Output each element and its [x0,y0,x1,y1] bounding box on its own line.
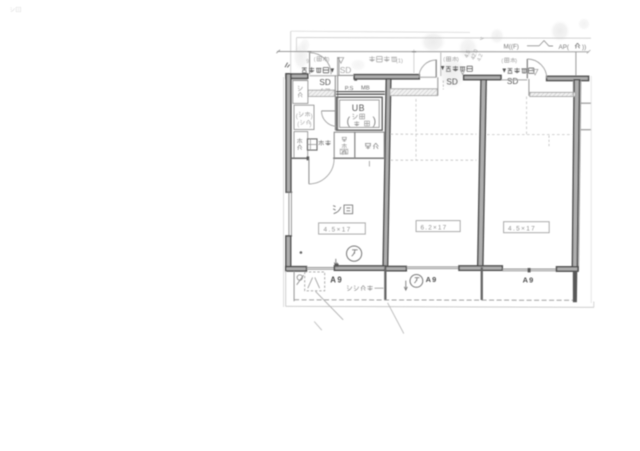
svg-text:AP(: AP( [559,44,570,51]
svg-text:UB: UB [352,103,365,113]
svg-text:(1): (1) [396,58,403,64]
svg-text:): ) [515,58,517,64]
svg-text:SD: SD [340,65,352,75]
svg-text:SD: SD [319,78,330,87]
svg-text:(: ( [501,58,503,64]
svg-text:9: 9 [306,59,309,65]
svg-text:4.5×17: 4.5×17 [508,225,536,232]
svg-text:SD: SD [446,78,457,87]
svg-text:(: ( [443,57,445,63]
svg-text:A9: A9 [523,276,535,285]
svg-text:SD: SD [507,77,518,86]
svg-text:M((F): M((F) [504,44,519,51]
svg-text:P.S: P.S [345,86,354,92]
svg-text:): ) [311,113,313,120]
svg-text:A9: A9 [426,275,438,284]
svg-text:)): )) [582,44,586,51]
svg-text:): ) [457,57,459,63]
svg-text:6.2×17: 6.2×17 [421,224,448,231]
svg-text:): ) [310,122,312,128]
svg-text:(: ( [314,57,316,63]
svg-text:A9: A9 [330,276,343,285]
svg-text:(: ( [297,122,299,128]
svg-text:4.5×17: 4.5×17 [324,227,352,234]
svg-text:): ) [373,116,377,128]
svg-text:MB: MB [361,86,370,92]
svg-text:(: ( [347,116,351,128]
